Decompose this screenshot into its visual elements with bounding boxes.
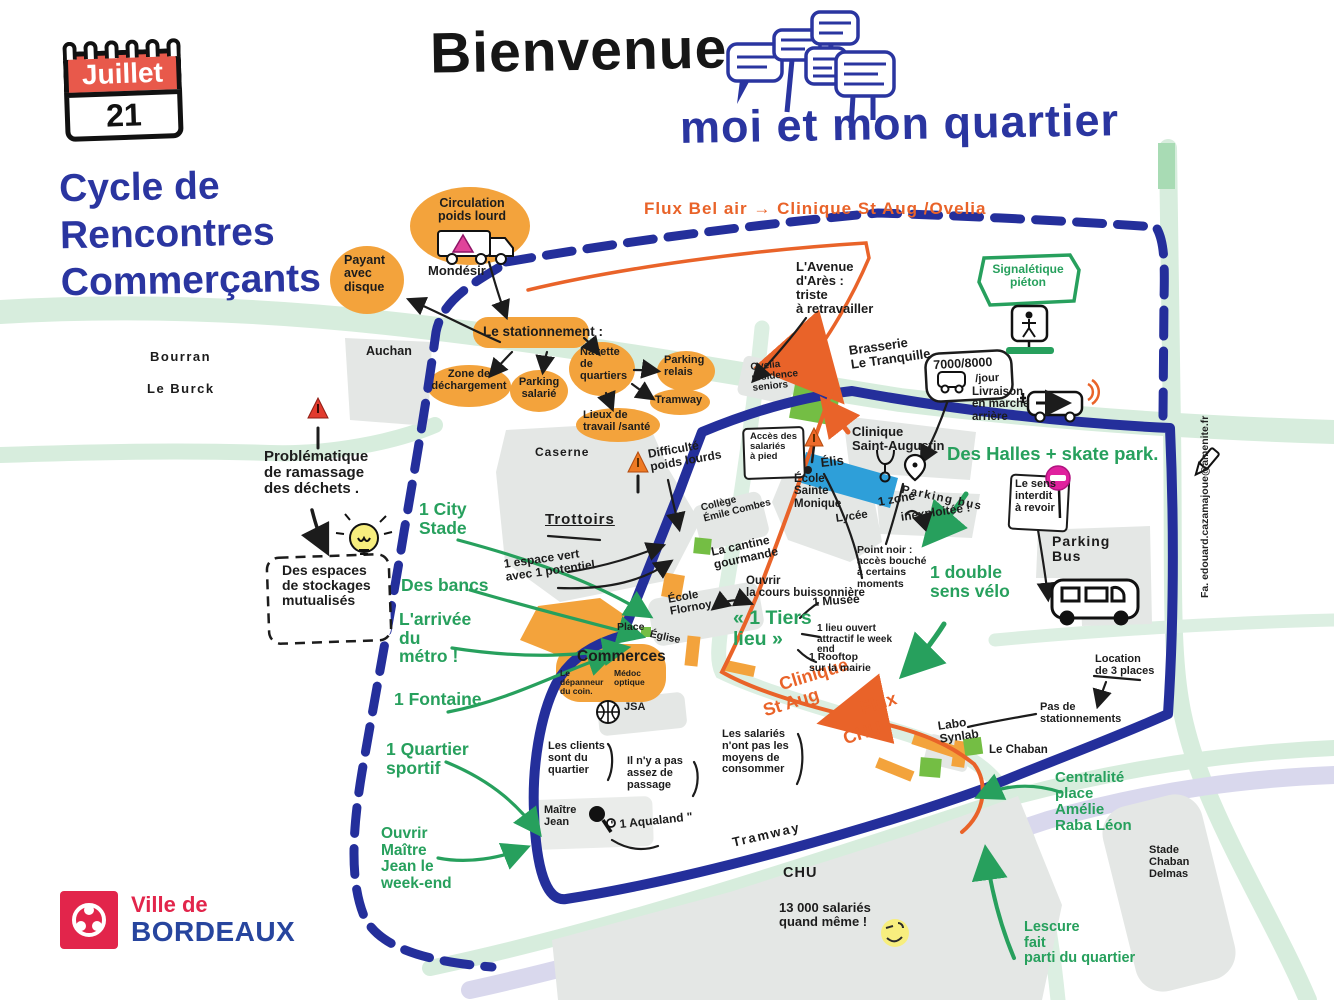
- calendar-day: 21: [64, 89, 184, 142]
- lieux-blob: [576, 408, 660, 442]
- graphic-recording-map: Juillet 21 Bienvenue moi et mon quartier…: [0, 0, 1334, 1000]
- green-square: [641, 627, 651, 637]
- orange-bar: [661, 572, 685, 599]
- logo-text: Ville de BORDEAUX: [131, 893, 295, 948]
- logo-city: BORDEAUX: [131, 917, 295, 948]
- maitre-jean-card: [532, 796, 654, 850]
- credit-line: Fa. edouard.cazamajoue@amenite.fr: [1199, 416, 1211, 598]
- warning-triangle-icon: [308, 398, 328, 418]
- series-title-line3: Commerçants: [60, 255, 321, 306]
- road-cap: [1158, 143, 1175, 189]
- series-title: Cycle de Rencontres Commerçants: [59, 162, 322, 307]
- relais-blob: [657, 351, 715, 391]
- page-title: Bienvenue: [429, 15, 727, 86]
- salarie-blob: [510, 370, 568, 412]
- lightbulb-icon: [336, 514, 392, 554]
- ovelia-block: [736, 355, 797, 405]
- tramway-blob: [650, 389, 710, 415]
- payant-blob: [330, 246, 404, 314]
- warning-triangle-icon: [805, 428, 823, 446]
- bordeaux-crest-icon: [60, 891, 118, 949]
- series-title-line2: Rencontres: [60, 209, 321, 260]
- auchan-block: [345, 338, 432, 426]
- series-title-line1: Cycle de: [59, 162, 320, 213]
- green-square: [963, 737, 983, 756]
- stockages-idea-box: [267, 554, 392, 644]
- logo-prefix: Ville de: [131, 893, 295, 917]
- stationnement-pill: [473, 317, 589, 348]
- calendar-month: Juillet: [63, 48, 182, 93]
- green-square: [919, 757, 942, 778]
- acces-salaries-card: [743, 427, 805, 479]
- basketball-icon: [597, 701, 619, 723]
- smiley-icon: [881, 919, 909, 947]
- map-drawing: [0, 0, 1334, 1000]
- zone-blob: [427, 365, 511, 407]
- page-subtitle: moi et mon quartier: [680, 94, 1120, 154]
- navette-blob: [569, 342, 635, 396]
- flux-chu-arrow: [834, 714, 862, 720]
- green-square: [693, 537, 712, 555]
- orange-bar: [875, 757, 914, 781]
- calendar-icon: Juillet 21: [62, 38, 183, 142]
- pedestrian-sign-icon: [979, 255, 1079, 354]
- parking-rv-icon: [1052, 580, 1138, 624]
- bordeaux-logo: Ville de BORDEAUX: [60, 891, 295, 949]
